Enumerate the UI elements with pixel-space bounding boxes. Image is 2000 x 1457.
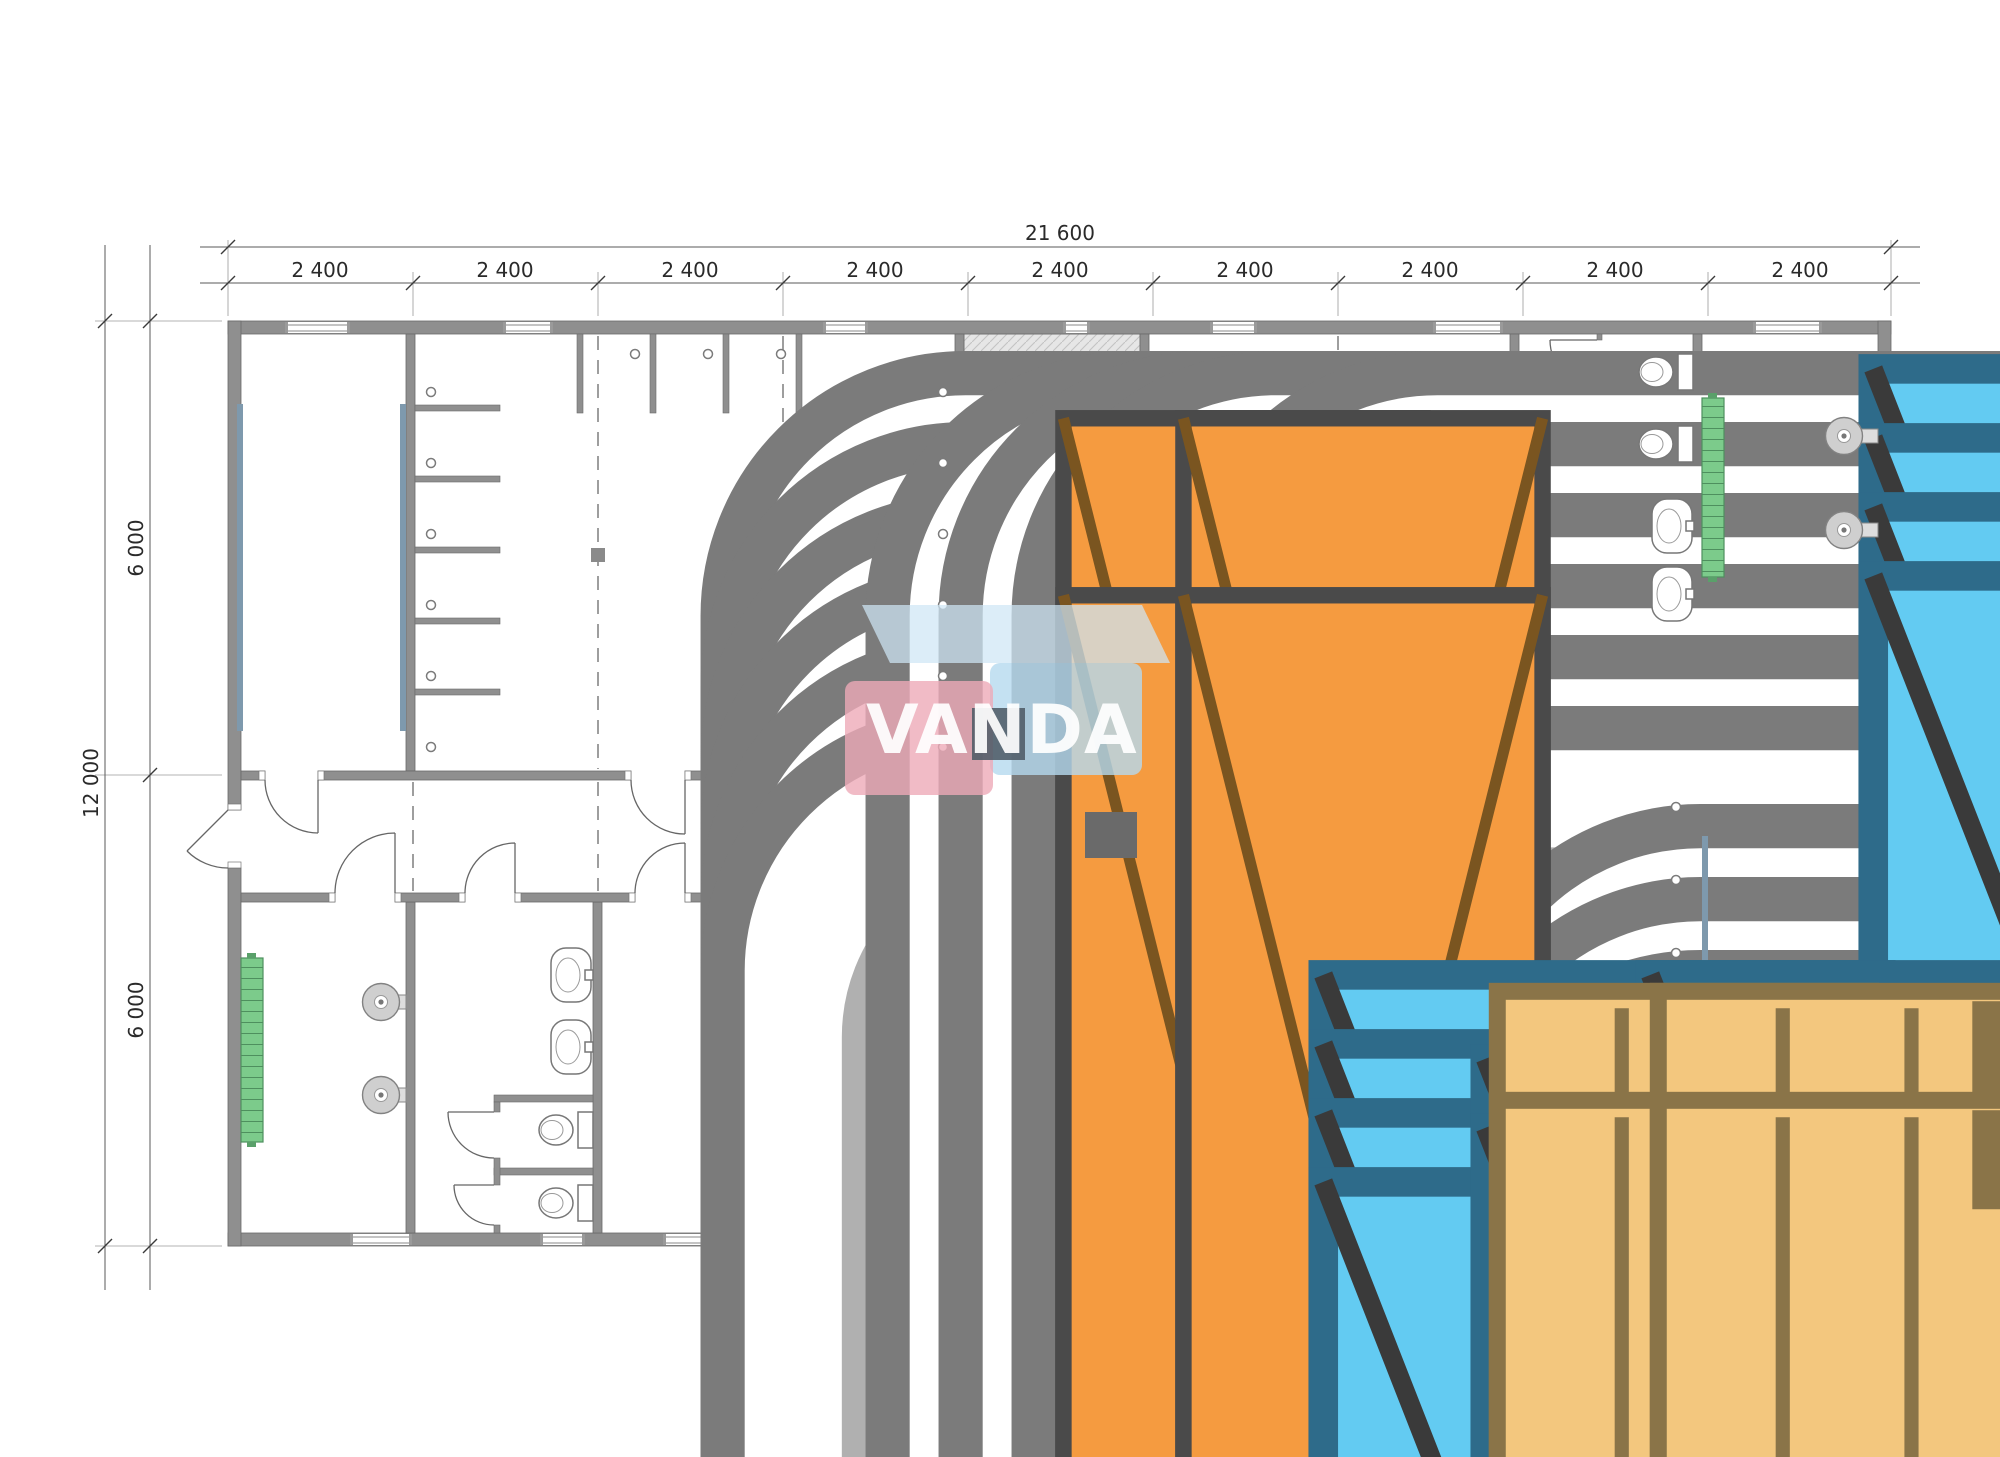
green-bench (1702, 393, 1724, 582)
door-swing-stall (454, 1185, 494, 1225)
dim-half-height: 6 000 (124, 981, 148, 1038)
toilet (539, 1185, 593, 1221)
dim-bay: 2 400 (1216, 258, 1273, 282)
window (823, 322, 868, 333)
window (1753, 322, 1822, 333)
wall-interior (406, 334, 415, 771)
floor-plan-page: 21 600 2 400 2 400 2 400 2 400 2 400 2 4… (0, 0, 2000, 1457)
bed-headboard-strip (237, 404, 243, 731)
window (1210, 322, 1257, 333)
watermark: VANDA (845, 605, 1170, 795)
door-swing (335, 833, 395, 893)
wall-corridor (515, 893, 635, 902)
service-shaft (1085, 812, 1137, 858)
stall-front (1597, 334, 1602, 340)
window (285, 322, 350, 333)
wash-basin (1652, 499, 1694, 553)
round-wash-fountain (363, 1077, 407, 1114)
dim-bay: 2 400 (1586, 258, 1643, 282)
bench (1658, 1100, 2000, 1457)
wall-exterior-left (228, 868, 241, 1246)
dim-bay: 2 400 (1771, 258, 1828, 282)
watermark-text: VANDA (866, 691, 1138, 770)
wash-basin (551, 1020, 593, 1074)
dim-bay: 2 400 (661, 258, 718, 282)
wall-interior (406, 902, 415, 1233)
wall-exterior-top (228, 321, 1891, 334)
door-swing-stall (448, 1112, 494, 1158)
window (1063, 322, 1090, 333)
dim-half-height: 6 000 (124, 519, 148, 576)
column-marker (591, 548, 605, 562)
toilet (539, 1112, 593, 1148)
wall-corridor (241, 893, 335, 902)
window (1433, 322, 1503, 333)
dim-bay: 2 400 (1401, 258, 1458, 282)
watermark-top-face (862, 605, 1170, 663)
bed-headboard-strip (400, 404, 406, 731)
round-wash-fountain (363, 984, 407, 1021)
door-swing (631, 780, 685, 834)
stall-partition (494, 1168, 593, 1175)
door-swing-exterior-left (187, 810, 228, 868)
dim-total-height: 12 000 (79, 748, 103, 818)
dim-bay: 2 400 (476, 258, 533, 282)
window (503, 322, 553, 333)
toilet (1639, 354, 1693, 390)
stall-front (494, 1225, 500, 1233)
dim-total-width: 21 600 (1025, 221, 1095, 245)
dim-bay: 2 400 (846, 258, 903, 282)
window (540, 1234, 585, 1245)
wash-basin (551, 948, 593, 1002)
door-swing (465, 843, 515, 893)
stall-front (494, 1102, 500, 1112)
dim-bay: 2 400 (291, 258, 348, 282)
wall-corridor (318, 771, 631, 780)
wall-interior (593, 902, 602, 1233)
window (663, 1234, 707, 1245)
window (350, 1234, 412, 1245)
stall-partition (494, 1095, 593, 1102)
door-swing (635, 843, 685, 893)
stall-front (494, 1158, 500, 1185)
floor-plan-svg: 21 600 2 400 2 400 2 400 2 400 2 400 2 4… (0, 0, 2000, 1457)
wash-basin (1652, 567, 1694, 621)
dim-bay: 2 400 (1031, 258, 1088, 282)
door-swing (265, 780, 318, 833)
toilet (1639, 426, 1693, 462)
wall-corridor (395, 893, 465, 902)
green-bench (241, 953, 263, 1147)
